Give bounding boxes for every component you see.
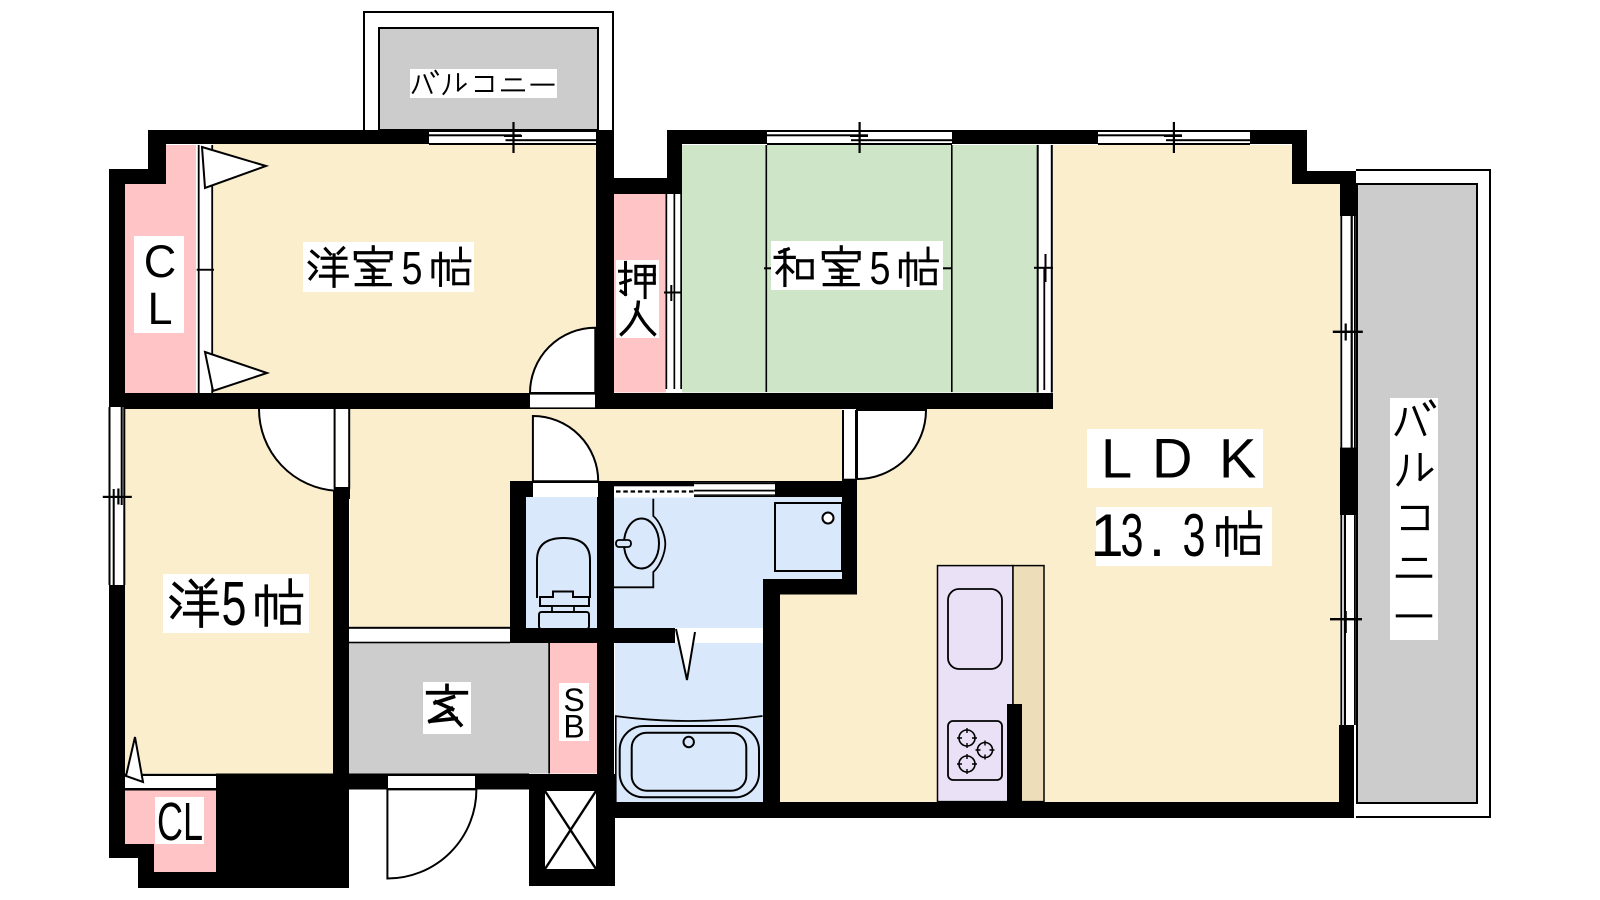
svg-text:B: B	[563, 709, 584, 745]
svg-text:L: L	[1101, 427, 1132, 490]
svg-text:C: C	[144, 236, 177, 287]
svg-text:L: L	[147, 283, 172, 334]
svg-text:3: 3	[1183, 502, 1206, 569]
svg-text:5: 5	[402, 242, 423, 294]
svg-text:5: 5	[870, 242, 891, 294]
svg-text:K: K	[1219, 427, 1256, 490]
svg-text:CL: CL	[157, 792, 203, 852]
svg-text:1: 1	[1090, 502, 1123, 569]
svg-text:D: D	[1152, 427, 1192, 490]
svg-text:.: .	[1149, 502, 1166, 569]
svg-text:5: 5	[222, 570, 247, 639]
svg-text:3: 3	[1121, 502, 1144, 569]
